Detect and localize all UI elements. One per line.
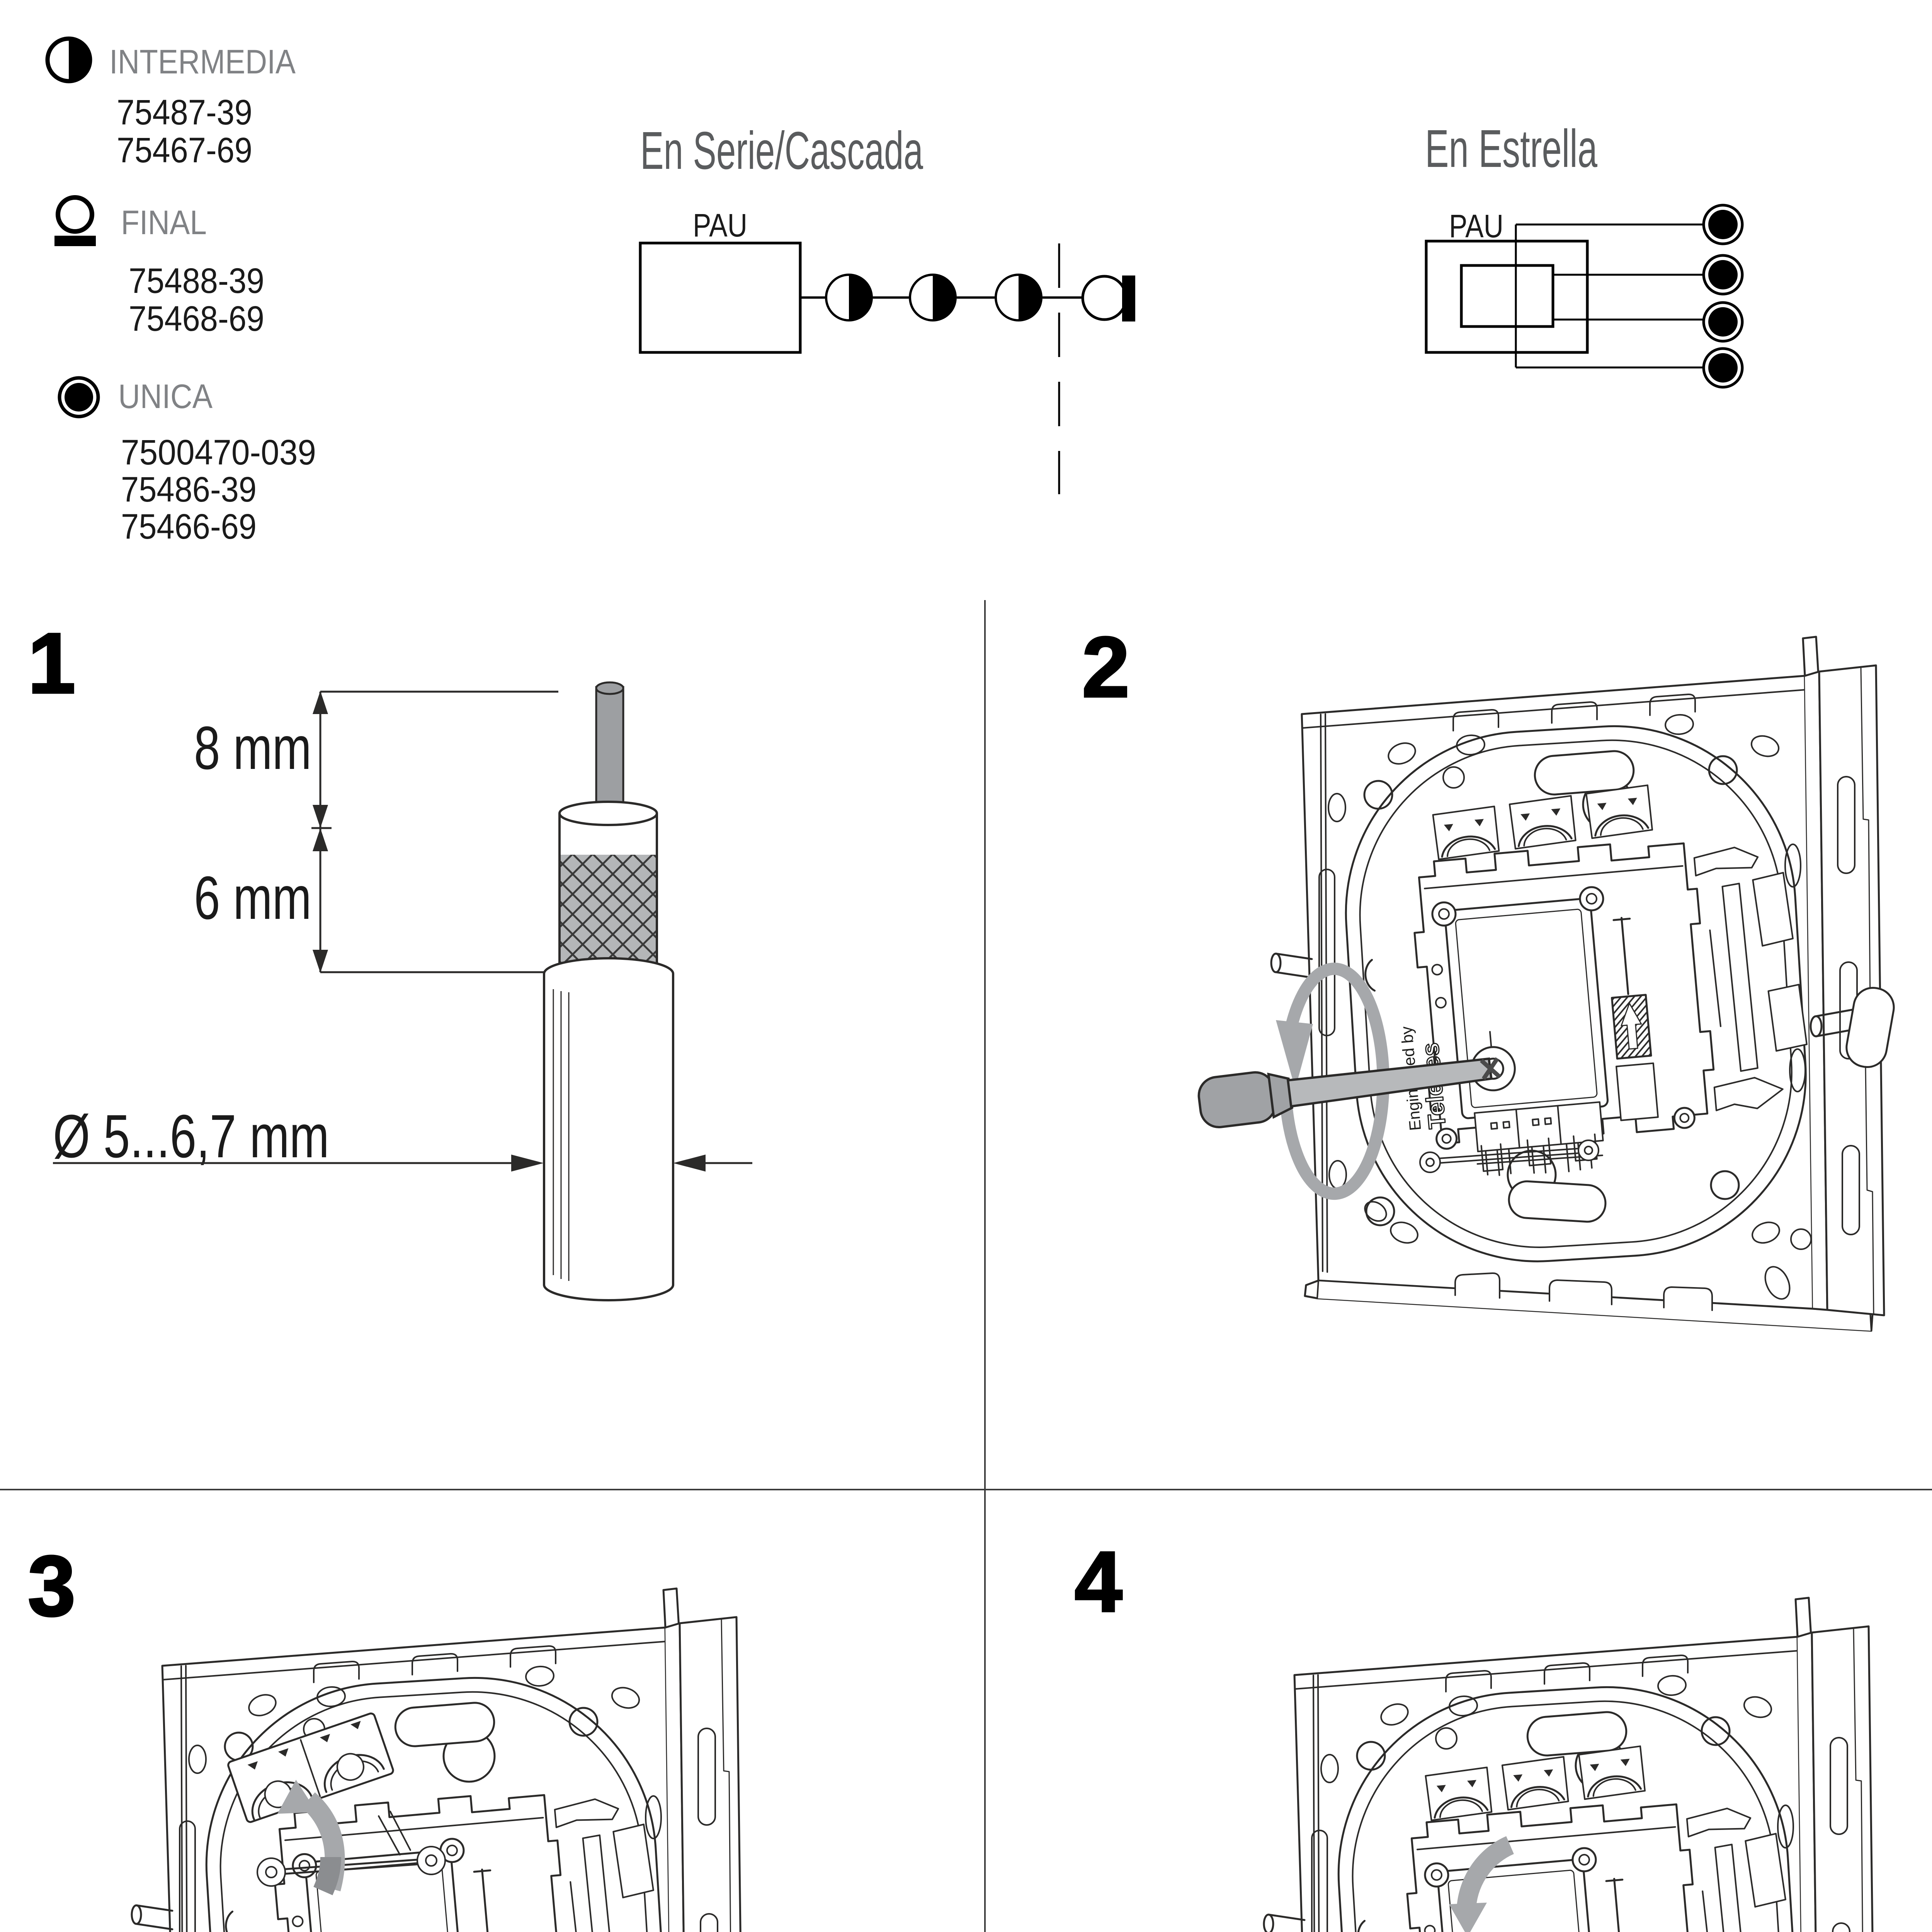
svg-text:75487-39: 75487-39: [117, 93, 252, 132]
svg-text:8 mm: 8 mm: [194, 714, 311, 782]
svg-text:75466-69: 75466-69: [121, 507, 257, 546]
svg-text:PAU: PAU: [693, 207, 747, 243]
svg-text:7500470-039: 7500470-039: [121, 433, 316, 472]
svg-text:1: 1: [28, 616, 75, 711]
svg-text:En Serie/Cascada: En Serie/Cascada: [640, 121, 923, 180]
svg-text:4: 4: [1075, 1534, 1122, 1630]
svg-text:75468-69: 75468-69: [129, 299, 264, 338]
svg-text:En Estrella: En Estrella: [1425, 119, 1597, 179]
svg-text:FINAL: FINAL: [121, 203, 207, 241]
svg-text:INTERMEDIA: INTERMEDIA: [109, 43, 296, 81]
svg-text:Ø 5...6,7 mm: Ø 5...6,7 mm: [53, 1102, 329, 1170]
svg-text:UNICA: UNICA: [118, 377, 213, 415]
svg-text:PAU: PAU: [1449, 208, 1503, 244]
svg-text:75467-69: 75467-69: [117, 131, 252, 170]
svg-text:2: 2: [1082, 619, 1129, 715]
svg-text:6 mm: 6 mm: [194, 864, 311, 932]
svg-text:3: 3: [28, 1538, 75, 1634]
svg-text:75488-39: 75488-39: [129, 261, 264, 301]
svg-text:75486-39: 75486-39: [121, 470, 257, 509]
